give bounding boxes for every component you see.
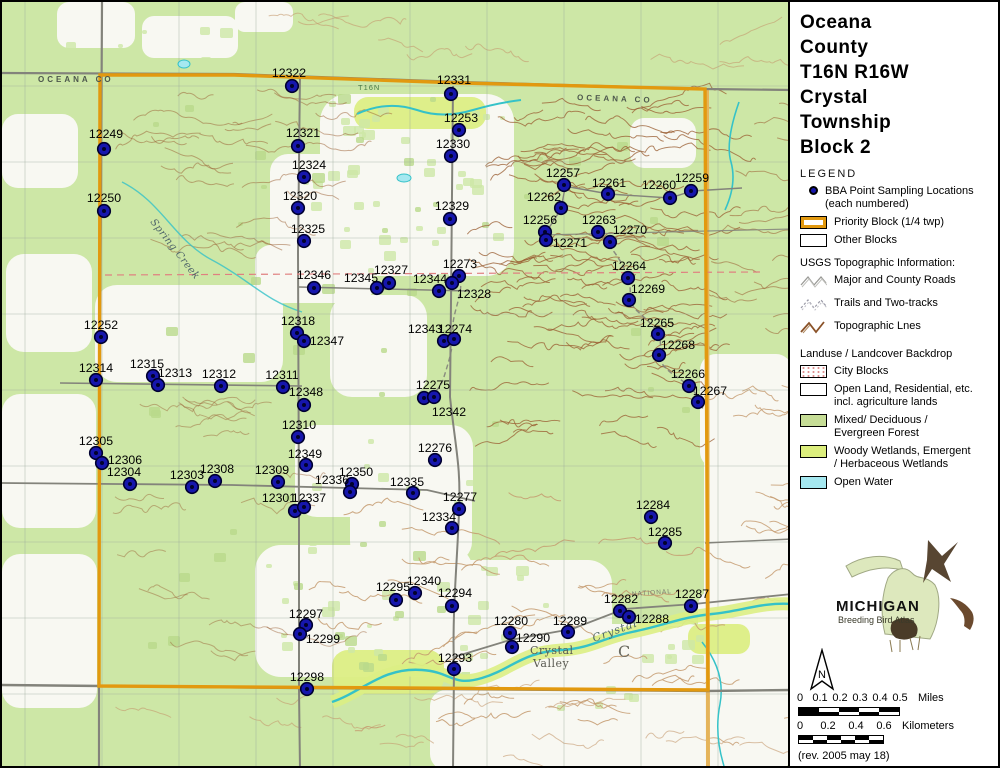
point-label: 12329 [435, 199, 469, 213]
point-label: 12331 [437, 73, 471, 87]
map-annotation: Crystal [530, 644, 574, 657]
legend-item-wetlands: Woody Wetlands, Emergent / Herbaceous We… [800, 445, 998, 471]
point-label: 12256 [523, 213, 557, 227]
point-dot-center [304, 623, 308, 627]
forest-icon [800, 414, 827, 427]
point-label: 12309 [255, 463, 289, 477]
point-label: 12348 [289, 385, 323, 399]
point-label: 12252 [84, 318, 118, 332]
point-dot-center [422, 396, 426, 400]
point-label: 12311 [265, 368, 298, 382]
usgs-section-heading: USGS Topographic Information: [800, 257, 998, 269]
legend-label: City Blocks [834, 365, 888, 378]
point-label: 12336 [315, 473, 349, 487]
trails-zigzag-icon [800, 297, 827, 315]
legend-label: Trails and Two-tracks [834, 297, 938, 310]
logo-title-text: MICHIGAN [836, 598, 920, 615]
point-dot-center [687, 384, 691, 388]
point-dot-center [450, 604, 454, 608]
point-dot-center [689, 189, 693, 193]
km-bar [798, 735, 884, 744]
point-label: 12267 [693, 384, 727, 398]
point-label: 12284 [636, 498, 670, 512]
point-label: 12277 [443, 490, 477, 504]
priority-block-icon [800, 216, 827, 229]
map-title-line: Township [800, 110, 998, 135]
point-label: 12276 [418, 441, 452, 455]
point-label: 12274 [438, 322, 472, 336]
point-dot-center [510, 645, 514, 649]
legend-label: Other Blocks [834, 234, 897, 247]
legend-label: Woody Wetlands, Emergent [834, 445, 971, 458]
point-dot-center [452, 667, 456, 671]
point-label: 12324 [292, 158, 326, 172]
point-label: 12263 [582, 213, 616, 227]
legend-label: Open Land, Residential, etc. [834, 383, 973, 396]
point-dot-center [566, 630, 570, 634]
scale-tick: 0.3 [852, 692, 867, 704]
legend-label: (each numbered) [825, 198, 974, 211]
point-dot-center [151, 374, 155, 378]
point-dot-center [99, 335, 103, 339]
north-label: N [818, 669, 826, 681]
legend-item-trails: Trails and Two-tracks [800, 297, 998, 315]
legend-item-forest: Mixed/ Deciduous / Evergreen Forest [800, 414, 998, 440]
point-label: 12345 [344, 271, 378, 285]
legend-panel: Oceana County T16N R16W Crystal Township… [788, 2, 998, 768]
point-label: 12328 [457, 287, 491, 301]
point-dot-center [663, 541, 667, 545]
scale-tick: 0.2 [820, 720, 835, 732]
point-label: 12269 [631, 282, 665, 296]
map-annotation: OCEANA CO [38, 75, 114, 84]
point-label: 12260 [642, 178, 676, 192]
point-dot-center [387, 281, 391, 285]
point-dot-center [627, 615, 631, 619]
point-label: 12270 [613, 223, 647, 237]
point-dot-center [627, 298, 631, 302]
legend-label: Evergreen Forest [834, 427, 928, 440]
point-label: 12285 [648, 525, 682, 539]
legend-item-open-land: Open Land, Residential, etc. incl. agric… [800, 383, 998, 409]
point-label: 12305 [79, 434, 113, 448]
point-dot-center [298, 632, 302, 636]
revision-note: (rev. 2005 may 18) [798, 750, 890, 762]
point-dot-center [562, 183, 566, 187]
topo-map: OCEANA COOCEANA COT16NSpring CreekNATION… [2, 2, 792, 768]
point-label: 12290 [516, 631, 550, 645]
point-label: 12321 [286, 126, 320, 140]
point-dot-center [657, 353, 661, 357]
point-label: 12304 [107, 465, 141, 479]
logo-subtitle-text: Breeding Bird Atlas [838, 615, 915, 625]
point-dot-center [437, 289, 441, 293]
legend-label: Mixed/ Deciduous / [834, 414, 928, 427]
miles-bar [798, 707, 900, 716]
legend-item-bba-points: BBA Point Sampling Locations (each numbe… [800, 185, 998, 211]
point-dot-center [508, 631, 512, 635]
map-title-line: T16N R16W [800, 60, 998, 85]
point-dot-center [94, 451, 98, 455]
point-dot-center [649, 515, 653, 519]
point-dot-center [190, 485, 194, 489]
scale-tick: 0.4 [872, 692, 887, 704]
open-water-icon [800, 476, 827, 489]
point-dot-center [296, 144, 300, 148]
point-dot-center [689, 604, 693, 608]
point-dot-center [618, 609, 622, 613]
point-label: 12271 [553, 236, 587, 250]
mbba-logo: MICHIGAN Breeding Bird Atlas [830, 536, 998, 658]
map-annotation: C [618, 642, 630, 661]
scale-unit: Miles [918, 692, 944, 704]
scale-unit: Kilometers [902, 720, 954, 732]
point-dot-center [452, 337, 456, 341]
point-label: 12330 [436, 137, 470, 151]
perched-bird-icon [950, 598, 974, 630]
point-label: 12340 [407, 574, 441, 588]
hawk-icon [923, 540, 958, 583]
north-arrow: N [806, 648, 838, 697]
atlas-map-page: OCEANA COOCEANA COT16NSpring CreekNATION… [0, 0, 1000, 768]
point-dot-center [312, 286, 316, 290]
point-dot-center [457, 274, 461, 278]
topo-zigzag-icon [800, 320, 827, 338]
point-label: 12287 [675, 587, 709, 601]
roads-zigzag-icon [800, 274, 827, 292]
city-blocks-icon [800, 365, 827, 378]
km-scalebar: 0 0.2 0.4 0.6 Kilometers [790, 720, 1000, 750]
point-dot-center [413, 591, 417, 595]
point-dot-center [450, 526, 454, 530]
legend-item-open-water: Open Water [800, 476, 998, 489]
point-label: 12262 [527, 190, 561, 204]
pond [178, 60, 190, 68]
legend-item-topo-lines: Topographic Lnes [800, 320, 998, 338]
point-label: 12344 [413, 272, 447, 286]
legend-item-priority-block: Priority Block (1/4 twp) [800, 216, 998, 229]
point-label: 12280 [494, 614, 528, 628]
point-dot-center [305, 687, 309, 691]
point-dot-center [442, 339, 446, 343]
point-dot-center [281, 385, 285, 389]
scale-tick: 0.2 [832, 692, 847, 704]
point-dot-center [449, 154, 453, 158]
point-dot-center [302, 339, 306, 343]
point-label: 12346 [297, 268, 331, 282]
point-dot-center [94, 378, 98, 382]
point-dot-center [448, 217, 452, 221]
point-dot-center [213, 479, 217, 483]
legend-label: Priority Block (1/4 twp) [834, 216, 944, 229]
legend-label: Topographic Lnes [834, 320, 921, 333]
point-label: 12335 [390, 475, 424, 489]
point-label: 12297 [289, 607, 323, 621]
map-title-line: Crystal [800, 85, 998, 110]
point-dot-center [450, 281, 454, 285]
point-label: 12259 [675, 171, 709, 185]
point-label: 12294 [438, 586, 472, 600]
other-blocks-icon [800, 234, 827, 247]
scale-tick: 0 [797, 692, 803, 704]
point-label: 12295 [376, 580, 410, 594]
map-title-line: Oceana [800, 10, 998, 35]
open-land-icon [800, 383, 827, 396]
point-label: 12282 [604, 592, 638, 606]
point-dot-center [608, 240, 612, 244]
map-annotation: Valley [532, 657, 570, 670]
legend-item-other-blocks: Other Blocks [800, 234, 998, 247]
scale-tick: 0.5 [892, 692, 907, 704]
point-dot-center [433, 458, 437, 462]
point-label: 12322 [272, 66, 306, 80]
map-canvas: OCEANA COOCEANA COT16NSpring CreekNATION… [2, 2, 792, 768]
point-dot-center [290, 84, 294, 88]
bba-point-icon [809, 186, 818, 195]
map-annotation: T16N [358, 83, 380, 92]
point-label: 12266 [671, 367, 705, 381]
point-dot-center [656, 332, 660, 336]
point-label: 12337 [292, 491, 326, 505]
point-dot-center [457, 128, 461, 132]
scale-tick: 0.6 [876, 720, 891, 732]
map-point-12288: 12288 [623, 611, 670, 626]
scale-tick: 0.4 [848, 720, 863, 732]
point-dot-center [375, 286, 379, 290]
legend-item-roads: Major and County Roads [800, 274, 998, 292]
point-dot-center [100, 461, 104, 465]
point-label: 12312 [202, 367, 236, 381]
point-label: 12318 [281, 314, 315, 328]
point-dot-center [102, 147, 106, 151]
point-label: 12308 [200, 462, 234, 476]
point-label: 12253 [444, 111, 478, 125]
point-label: 12320 [283, 189, 317, 203]
point-label: 12293 [438, 651, 472, 665]
point-label: 12289 [553, 614, 587, 628]
point-label: 12327 [374, 263, 408, 277]
point-label: 12310 [282, 418, 316, 432]
point-dot-center [394, 598, 398, 602]
point-label: 12334 [422, 510, 456, 524]
point-dot-center [457, 507, 461, 511]
point-dot-center [411, 491, 415, 495]
map-title-line: Block 2 [800, 135, 998, 160]
point-dot-center [559, 206, 563, 210]
point-dot-center [276, 480, 280, 484]
point-label: 12257 [546, 166, 580, 180]
landuse-section-heading: Landuse / Landcover Backdrop [800, 348, 998, 360]
point-dot-center [295, 331, 299, 335]
point-dot-center [449, 92, 453, 96]
point-label: 12342 [432, 405, 466, 419]
point-dot-center [304, 463, 308, 467]
point-dot-center [626, 276, 630, 280]
point-dot-center [296, 435, 300, 439]
point-label: 12275 [416, 378, 450, 392]
point-label: 12268 [661, 338, 695, 352]
point-label: 12273 [443, 257, 477, 271]
point-dot-center [302, 505, 306, 509]
point-dot-center [302, 175, 306, 179]
point-label: 12264 [612, 259, 646, 273]
map-point-12347: 12347 [298, 334, 345, 348]
point-dot-center [293, 509, 297, 513]
point-dot-center [302, 403, 306, 407]
point-label: 12249 [89, 127, 123, 141]
scale-tick: 0 [797, 720, 803, 732]
point-label: 12325 [291, 222, 325, 236]
point-dot-center [219, 384, 223, 388]
point-dot-center [128, 482, 132, 486]
point-label: 12349 [288, 447, 322, 461]
point-dot-center [102, 209, 106, 213]
point-label: 12265 [640, 316, 674, 330]
miles-scalebar: 0 0.1 0.2 0.3 0.4 0.5 Miles [790, 692, 1000, 722]
point-label: 12288 [635, 612, 669, 626]
point-dot-center [544, 238, 548, 242]
point-label: 12313 [158, 366, 192, 380]
point-label: 12261 [592, 176, 626, 190]
scale-tick: 0.1 [812, 692, 827, 704]
point-dot-center [302, 239, 306, 243]
point-dot-center [348, 490, 352, 494]
point-dot-center [668, 196, 672, 200]
point-label: 12250 [87, 191, 121, 205]
point-label: 12298 [290, 670, 324, 684]
point-dot-center [156, 383, 160, 387]
legend-item-city-blocks: City Blocks [800, 365, 998, 378]
legend-label: incl. agriculture lands [834, 396, 973, 409]
point-label: 12314 [79, 361, 113, 375]
legend-label: Open Water [834, 476, 893, 489]
map-title-line: County [800, 35, 998, 60]
point-label: 12299 [306, 632, 340, 646]
point-label: 12347 [310, 334, 344, 348]
point-dot-center [606, 192, 610, 196]
legend-heading: LEGEND [800, 168, 998, 180]
point-dot-center [696, 400, 700, 404]
legend-label: Major and County Roads [834, 274, 956, 287]
pond [397, 174, 411, 182]
legend-label: / Herbaceous Wetlands [834, 458, 971, 471]
point-dot-center [596, 230, 600, 234]
point-dot-center [296, 206, 300, 210]
legend-label: BBA Point Sampling Locations [825, 185, 974, 198]
wetlands-icon [800, 445, 827, 458]
point-dot-center [432, 395, 436, 399]
